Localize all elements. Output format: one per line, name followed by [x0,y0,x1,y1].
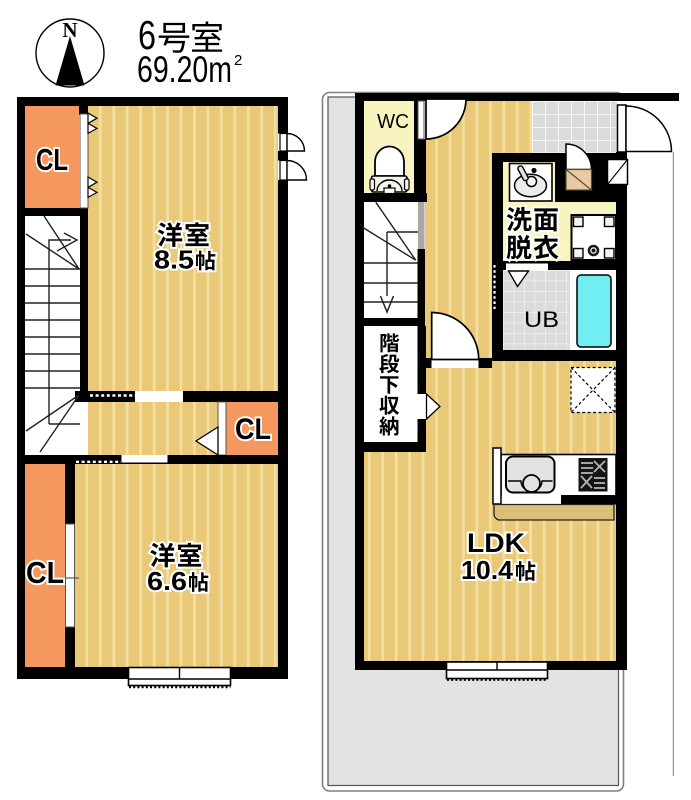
svg-text:69.20m: 69.20m [137,49,232,90]
svg-text:6.6: 6.6 [147,566,187,596]
svg-text:CL: CL [26,555,64,590]
svg-text:LDK: LDK [467,528,526,558]
svg-text:CL: CL [235,413,271,446]
svg-text:10.4: 10.4 [461,555,514,585]
svg-text:UB: UB [524,307,559,332]
svg-text:N: N [62,18,77,42]
svg-text:CL: CL [36,142,68,177]
svg-text:8.5: 8.5 [154,245,194,275]
svg-text:WC: WC [377,111,409,133]
svg-text:2: 2 [234,52,242,69]
